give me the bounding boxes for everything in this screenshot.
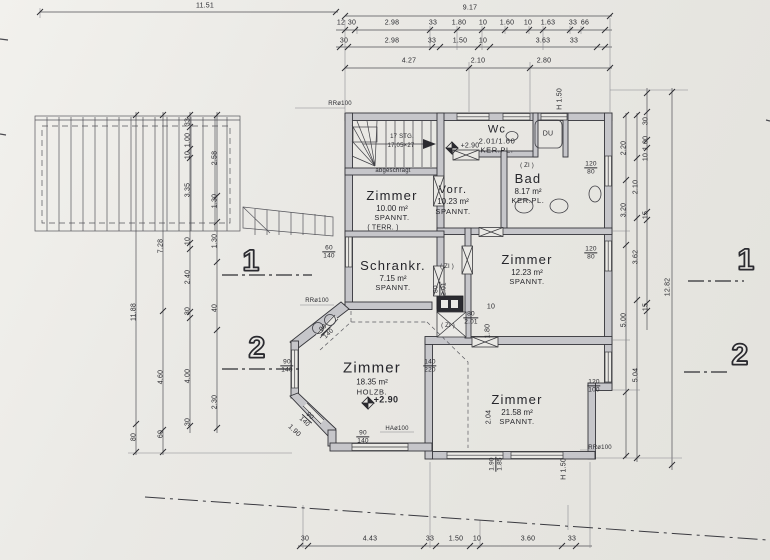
- shower-label: DU: [543, 130, 554, 137]
- dim-right: 30: [642, 117, 649, 125]
- dim-top: 10: [524, 19, 532, 26]
- note-height: H 1.50: [560, 458, 567, 480]
- window-tag: 140220: [423, 358, 436, 373]
- dim-right: 1.00: [642, 136, 649, 150]
- dim-left: 3.35: [184, 183, 191, 197]
- section-marker: 1: [243, 245, 260, 277]
- dim-right-total: 12.82: [664, 278, 671, 297]
- dim-left: 2.30: [211, 395, 218, 409]
- door-tag: 802.01: [432, 281, 447, 296]
- dim-left: 10: [184, 151, 191, 159]
- dim-bottom: 10: [473, 535, 481, 542]
- annotation-layer: 11.519.1712302.98331.80101.60101.6333663…: [0, 0, 770, 560]
- dim-left: 4.60: [157, 370, 164, 384]
- zi-note: ( ZI ): [440, 264, 454, 270]
- dim-top: 3.63: [536, 37, 550, 44]
- dim-left: 11.88: [130, 303, 137, 321]
- floor-plan-sheet: Zimmer 10.00 m² SPANNT. Vorr. 10.23 m² S…: [0, 0, 770, 560]
- dim-top: 33: [428, 37, 436, 44]
- dim-left: 1.30: [211, 194, 218, 208]
- dim-room: 1.901.85: [488, 456, 503, 471]
- dim-bottom: 33: [568, 535, 576, 542]
- zi-note: ( ZI ): [520, 163, 534, 169]
- dim-bottom: 3.60: [521, 535, 535, 542]
- dim-top: 1.63: [541, 19, 555, 26]
- dim-left: 2.40: [184, 270, 191, 284]
- dim-bottom: 33: [426, 535, 434, 542]
- dim-top: 12: [337, 19, 345, 26]
- dim-top: 1.50: [453, 37, 467, 44]
- section-marker: 2: [732, 339, 749, 371]
- dim-right: 15: [642, 211, 649, 219]
- window-tag: 90140: [297, 409, 317, 429]
- stairs-note: 17,05×27: [388, 143, 415, 149]
- dim-left: 60: [157, 430, 164, 438]
- dim-room: 1.90: [286, 423, 302, 438]
- dim-top: 66: [581, 19, 589, 26]
- dim-top: 2.10: [471, 57, 485, 64]
- window-tag: 90140: [316, 321, 336, 341]
- window-tag: 90140: [356, 429, 369, 444]
- dim-top: 33: [429, 19, 437, 26]
- dim-top: 1.60: [500, 19, 514, 26]
- dim-left: 1.00: [184, 133, 191, 147]
- dim-room: 2.04: [485, 410, 492, 424]
- window-tag: 60140: [322, 244, 335, 259]
- pipe-note: HAø100: [385, 426, 408, 432]
- dim-left: 7.28: [157, 239, 164, 253]
- window-tag: 90140: [280, 358, 293, 373]
- dim-right: 2.10: [632, 180, 639, 194]
- dim-top: 10: [479, 19, 487, 26]
- dim-top: 2.98: [385, 19, 399, 26]
- dim-right: 5.04: [632, 368, 639, 382]
- level-marker-label: +2.90: [374, 395, 399, 404]
- zi-note: ( ZI ): [441, 323, 455, 329]
- dim-right: 3.20: [620, 203, 627, 217]
- dim-left: 33: [184, 118, 191, 126]
- terrace-note: ( TERR. ): [367, 224, 398, 231]
- section-marker: 1: [738, 244, 755, 276]
- dim-left: 1.30: [211, 234, 218, 248]
- dim-top: 33: [569, 19, 577, 26]
- dim-left: 2.58: [211, 151, 218, 165]
- door-tag: 802.01: [463, 310, 478, 325]
- dim-left: 30: [184, 307, 191, 315]
- pipe-note: RRø100: [588, 445, 612, 451]
- note-height: H 1.50: [556, 88, 563, 110]
- dim-top: 30: [348, 19, 356, 26]
- dim-top: 2.98: [385, 37, 399, 44]
- dim-left: 4.00: [184, 369, 191, 383]
- dim-top: 33: [570, 37, 578, 44]
- section-marker: 2: [249, 332, 266, 364]
- dim-top-total: 9.17: [463, 4, 477, 11]
- stairs-note: 17 STG.: [390, 134, 414, 140]
- dim-top: 4.27: [402, 57, 416, 64]
- window-tag: 12080: [584, 245, 597, 260]
- dim-right: 15: [642, 303, 649, 311]
- pipe-note: RRø100: [328, 101, 352, 107]
- dim-top: 10: [479, 37, 487, 44]
- dim-bottom: 1.50: [449, 535, 463, 542]
- dim-right: 10: [642, 153, 649, 161]
- dim-left: 40: [211, 304, 218, 312]
- level-marker-label: +2.90: [461, 142, 480, 149]
- dim-left: 10: [184, 237, 191, 245]
- pipe-note: RRø100: [305, 298, 329, 304]
- dim-bottom: 30: [301, 535, 309, 542]
- window-tag: 120100: [587, 378, 600, 393]
- dim-right: 2.20: [620, 141, 627, 155]
- dim-room: 1.80: [484, 324, 491, 338]
- dim-right: 5.00: [620, 313, 627, 327]
- dim-bottom: 4.43: [363, 535, 377, 542]
- dim-left: 30: [184, 418, 191, 426]
- dim-right: 3.62: [632, 250, 639, 264]
- window-tag: 12080: [584, 160, 597, 175]
- dim-top-total-left: 11.51: [196, 2, 214, 9]
- dim-top: 1.80: [452, 19, 466, 26]
- dim-left: 80: [130, 433, 137, 441]
- dim-top: 30: [340, 37, 348, 44]
- dim-room: 10: [487, 303, 495, 310]
- ceiling-note: abgeschrägt: [375, 168, 410, 174]
- dim-top: 2.80: [537, 57, 551, 64]
